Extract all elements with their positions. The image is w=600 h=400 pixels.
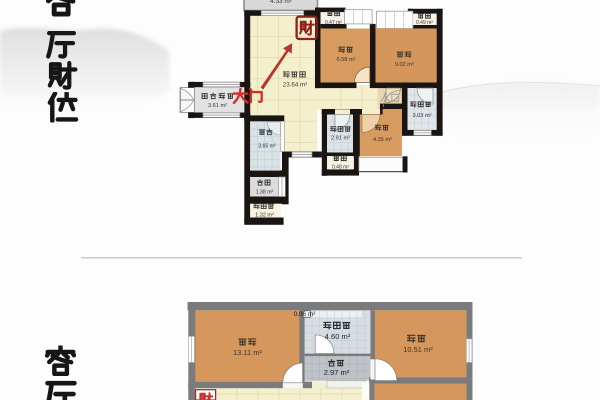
svg-text:13.11 m²: 13.11 m² <box>233 348 263 357</box>
svg-text:6.58 m²: 6.58 m² <box>337 57 356 63</box>
svg-text:4.33 m²: 4.33 m² <box>270 0 292 5</box>
svg-text:0.47 m²: 0.47 m² <box>325 20 342 26</box>
svg-text:2.91 m²: 2.91 m² <box>331 136 350 142</box>
svg-text:4.60 m²: 4.60 m² <box>325 332 351 341</box>
svg-text:0.49 m²: 0.49 m² <box>416 20 433 26</box>
svg-text:3.65 m²: 3.65 m² <box>258 144 276 150</box>
svg-text:2.97 m²: 2.97 m² <box>324 368 350 377</box>
svg-text:23.64 m²: 23.64 m² <box>283 82 307 89</box>
svg-text:3.03 m²: 3.03 m² <box>413 113 432 119</box>
svg-text:0.06 m²: 0.06 m² <box>294 311 316 318</box>
svg-text:3.61 m²: 3.61 m² <box>208 103 227 109</box>
svg-text:9.02 m²: 9.02 m² <box>395 62 414 68</box>
svg-text:0.48 m²: 0.48 m² <box>332 164 349 170</box>
svg-text:1.32 m²: 1.32 m² <box>255 212 274 218</box>
svg-text:10.51 m²: 10.51 m² <box>403 345 433 354</box>
svg-text:1.38 m²: 1.38 m² <box>256 190 274 196</box>
svg-text:4.35 m²: 4.35 m² <box>373 137 392 143</box>
